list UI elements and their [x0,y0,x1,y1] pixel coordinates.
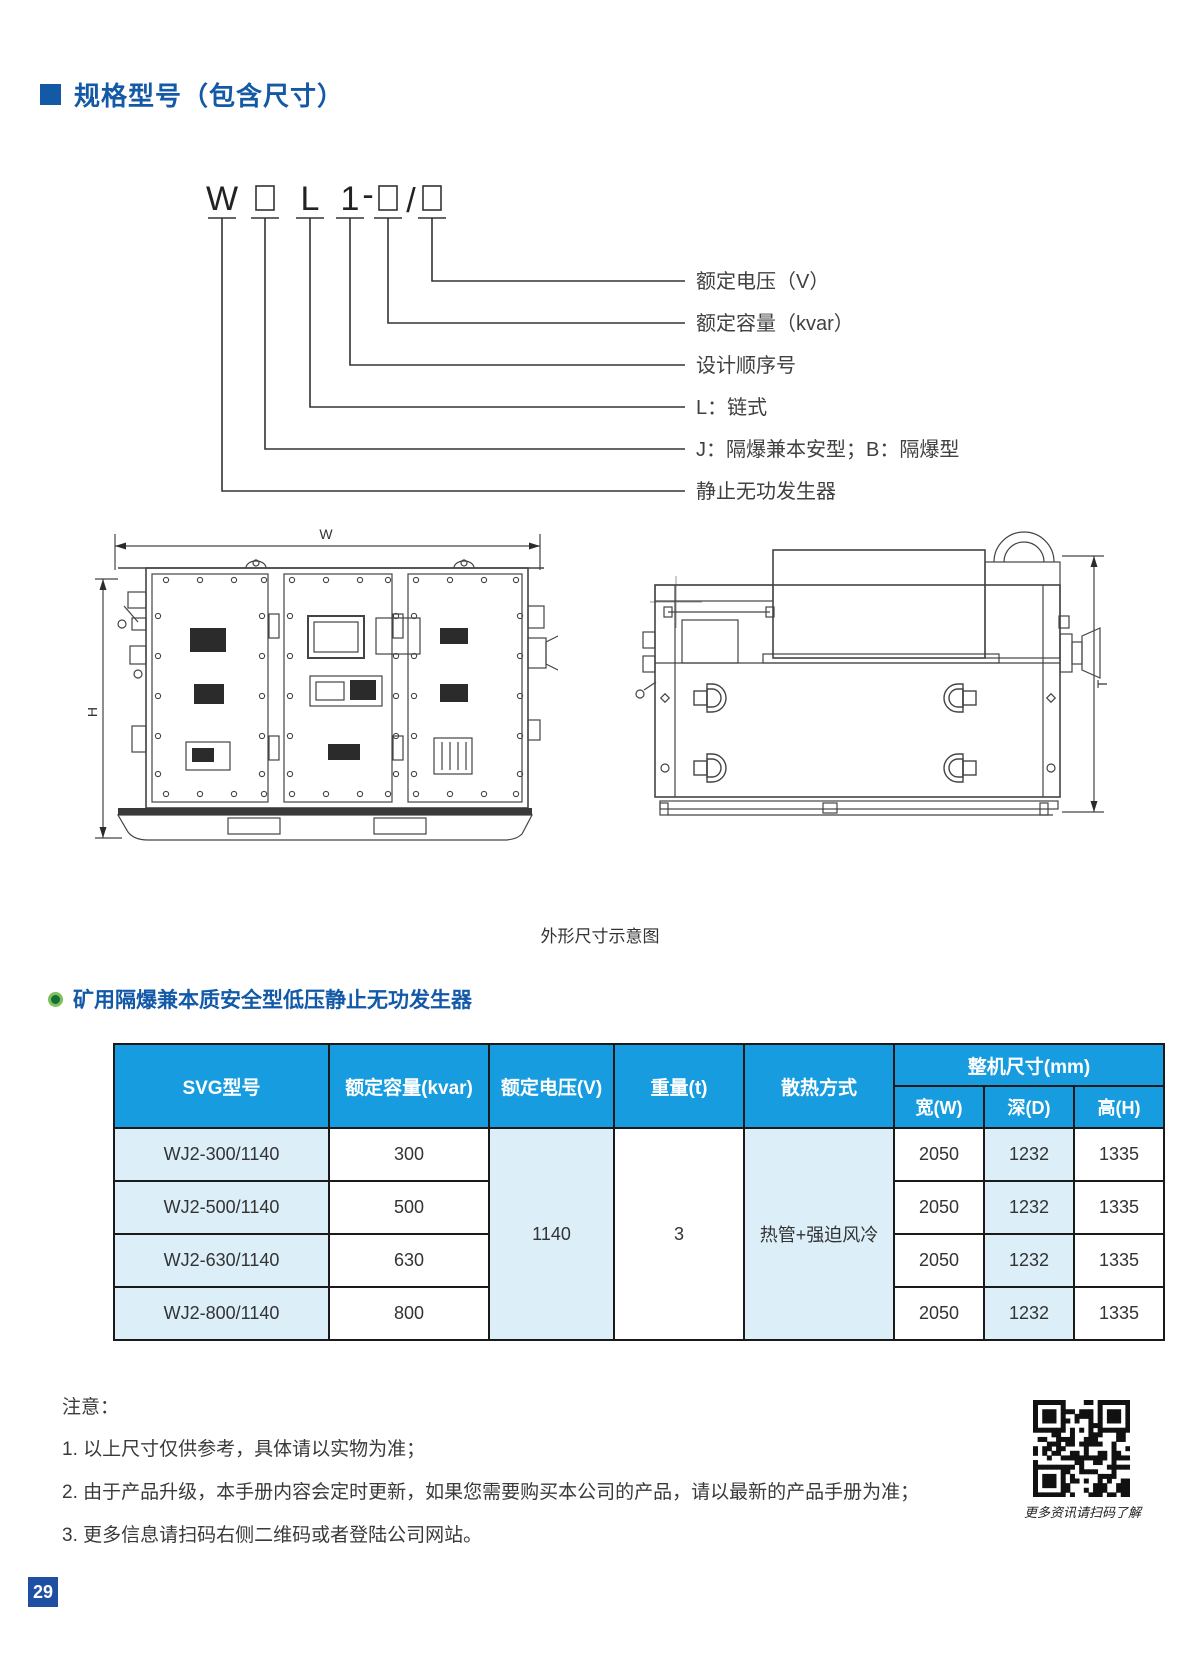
cell-width: 2050 [894,1234,984,1287]
code-char-w: W [206,180,238,218]
section-bullet-icon [48,992,63,1007]
cell-depth: 1232 [984,1181,1074,1234]
cell-voltage-merged: 1140 [489,1128,614,1340]
col-header-voltage: 额定电压(V) [489,1044,614,1128]
col-header-width: 宽(W) [894,1086,984,1128]
cell-width: 2050 [894,1181,984,1234]
cell-model: WJ2-630/1140 [114,1234,329,1287]
code-label-chain: L：链式 [696,396,767,419]
cell-height: 1335 [1074,1234,1164,1287]
cell-height: 1335 [1074,1287,1164,1340]
code-char-dash: - [362,176,373,214]
col-header-model: SVG型号 [114,1044,329,1128]
model-code-diagram: W L 1 - / 额定电压（V） 额定容量（kvar） [180,148,980,513]
code-char-seq: 1 [341,180,360,218]
col-header-weight: 重量(t) [614,1044,744,1128]
dim-label-t: T [1094,679,1110,688]
dim-label-w: W [319,526,333,542]
cell-width: 2050 [894,1287,984,1340]
cell-height: 1335 [1074,1128,1164,1181]
cell-depth: 1232 [984,1234,1074,1287]
col-header-depth: 深(D) [984,1086,1074,1128]
qr-caption: 更多资讯请扫码了解 [990,1502,1175,1521]
cell-model: WJ2-300/1140 [114,1128,329,1181]
page-title-block: 规格型号（包含尺寸） [40,76,344,113]
col-header-dimensions: 整机尺寸(mm) [894,1044,1164,1086]
code-char-slash: / [406,182,416,220]
code-leader-lines [208,218,685,491]
note-line: 2. 由于产品升级，本手册内容会定时更新，如果您需要购买本公司的产品，请以最新的… [62,1477,919,1504]
cell-model: WJ2-800/1140 [114,1287,329,1340]
catalog-page: 规格型号（包含尺寸） W L 1 - / [0,0,1200,1669]
title-square-bullet-icon [40,84,61,105]
note-line: 3. 更多信息请扫码右侧二维码或者登陆公司网站。 [62,1520,482,1547]
code-label-sequence: 设计顺序号 [696,354,796,377]
dim-label-h: H [88,707,100,717]
cell-depth: 1232 [984,1287,1074,1340]
spec-table: SVG型号 额定容量(kvar) 额定电压(V) 重量(t) 散热方式 整机尺寸… [113,1043,1165,1341]
front-view-drawing: W H [88,522,558,852]
section-header: 矿用隔爆兼本质安全型低压静止无功发生器 [48,984,472,1014]
code-label-type: J：隔爆兼本安型；B：隔爆型 [696,438,959,461]
drawing-caption: 外形尺寸示意图 [0,922,1200,947]
code-label-voltage: 额定电压（V） [696,270,829,293]
section-title: 矿用隔爆兼本质安全型低压静止无功发生器 [73,984,472,1014]
cell-model: WJ2-500/1140 [114,1181,329,1234]
page-title: 规格型号（包含尺寸） [74,76,344,113]
cell-width: 2050 [894,1128,984,1181]
col-header-height: 高(H) [1074,1086,1164,1128]
note-line: 1. 以上尺寸仅供参考，具体请以实物为准； [62,1434,425,1461]
page-number-badge: 29 [28,1577,58,1607]
side-view-drawing: T [598,522,1118,832]
notes-title: 注意： [62,1392,119,1419]
cell-capacity: 500 [329,1181,489,1234]
col-header-cooling: 散热方式 [744,1044,894,1128]
code-label-capacity: 额定容量（kvar） [696,312,854,335]
cell-capacity: 800 [329,1287,489,1340]
cell-depth: 1232 [984,1128,1074,1181]
table-row: WJ2-300/1140 300 1140 3 热管+强迫风冷 2050 123… [114,1128,1164,1181]
code-char-l: L [301,180,320,218]
code-label-generator: 静止无功发生器 [696,480,836,503]
cell-capacity: 630 [329,1234,489,1287]
cell-capacity: 300 [329,1128,489,1181]
cell-height: 1335 [1074,1181,1164,1234]
col-header-capacity: 额定容量(kvar) [329,1044,489,1128]
cell-cooling-merged: 热管+强迫风冷 [744,1128,894,1340]
qr-code [1033,1400,1130,1497]
cell-weight-merged: 3 [614,1128,744,1340]
